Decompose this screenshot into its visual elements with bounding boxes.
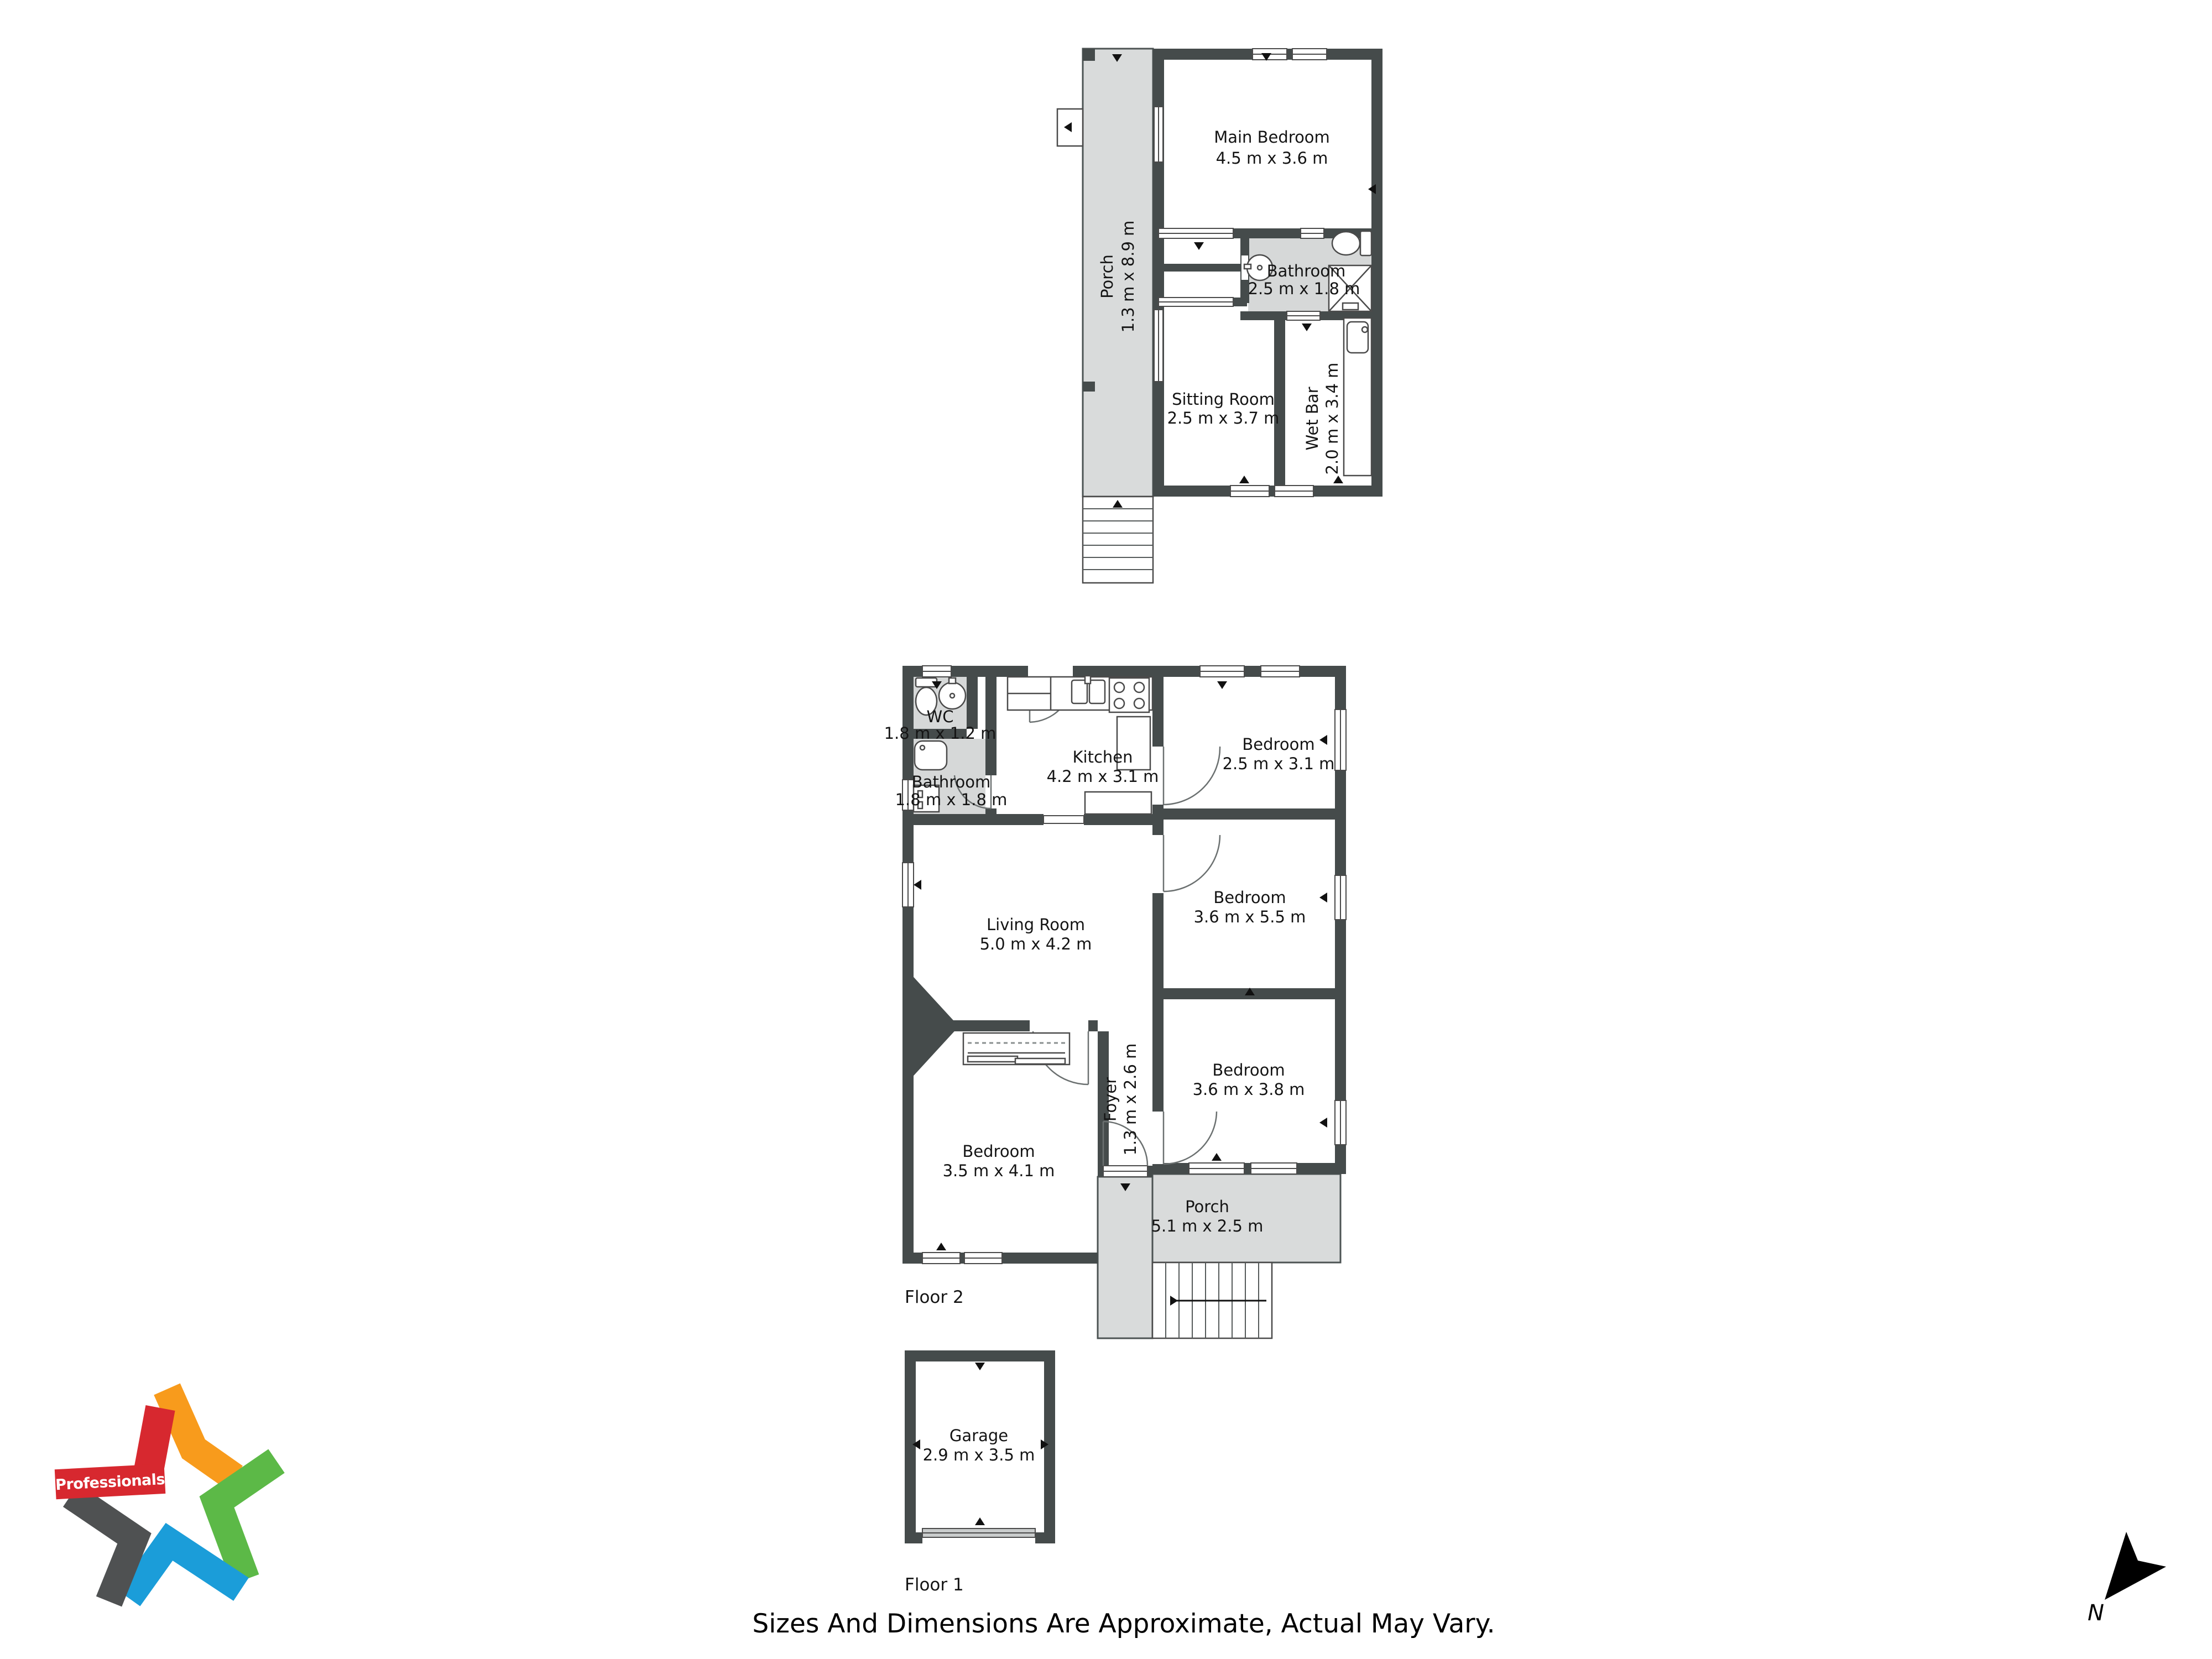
room-label-wc: WC <box>927 707 954 726</box>
bedroom-closet <box>963 1033 1070 1065</box>
room-dims-upper-porch: 1.3 m x 8.9 m <box>1119 221 1138 333</box>
floor1-plan: Garage 2.9 m x 3.5 m Floor 1 <box>905 1350 1055 1595</box>
room-label-upper-bathroom: Bathroom <box>1267 262 1345 280</box>
room-label-wet-bar: Wet Bar <box>1303 387 1322 450</box>
logo-star-arm-orange <box>167 1389 234 1478</box>
north-arrow-icon <box>2105 1532 2166 1600</box>
garage-door <box>922 1528 1035 1543</box>
room-label-bedroom-1: Bedroom <box>1242 735 1314 754</box>
floor2-label: Floor 2 <box>905 1287 964 1307</box>
room-label-bathroom2: Bathroom <box>912 773 990 791</box>
logo-star-arm-green <box>217 1461 276 1579</box>
north-label: N <box>2088 1600 2104 1626</box>
room-dims-kitchen: 4.2 m x 3.1 m <box>1047 767 1159 786</box>
floorplan-canvas: Main Bedroom 4.5 m x 3.6 m Porch 1.3 m x… <box>0 0 2212 1659</box>
logo-star-arm-red <box>148 1408 160 1473</box>
room-label-porch2: Porch <box>1185 1197 1229 1216</box>
room-dims-wc: 1.8 m x 1.2 m <box>884 724 997 743</box>
professionals-logo: Professionals <box>55 1389 276 1601</box>
upper-floor-plan: Main Bedroom 4.5 m x 3.6 m Porch 1.3 m x… <box>1057 49 1383 583</box>
upper-bathroom-toilet <box>1332 231 1371 255</box>
room-dims-main-bedroom: 4.5 m x 3.6 m <box>1216 149 1328 168</box>
upper-wetbar-counter <box>1344 318 1371 476</box>
north-compass: N <box>2088 1532 2166 1626</box>
room-dims-bedroom-2: 3.6 m x 5.5 m <box>1194 907 1306 926</box>
logo-banner: Professionals <box>55 1464 166 1499</box>
room-label-living-room: Living Room <box>987 915 1085 934</box>
room-dims-garage: 2.9 m x 3.5 m <box>923 1446 1035 1464</box>
room-dims-bedroom-3: 3.6 m x 3.8 m <box>1193 1080 1305 1099</box>
floor1-label: Floor 1 <box>905 1575 964 1595</box>
room-dims-bedroom-1: 2.5 m x 3.1 m <box>1223 754 1335 773</box>
room-label-foyer: Foyer <box>1101 1077 1120 1121</box>
floor2-plan: WC 1.8 m x 1.2 m Kitchen 4.2 m x 3.1 m B… <box>884 666 1346 1338</box>
room-dims-wet-bar: 2.0 m x 3.4 m <box>1323 363 1342 475</box>
room-dims-foyer: 1.3 m x 2.6 m <box>1121 1044 1140 1156</box>
room-label-garage: Garage <box>950 1426 1008 1445</box>
room-label-kitchen: Kitchen <box>1073 748 1133 766</box>
room-dims-living-room: 5.0 m x 4.2 m <box>980 935 1092 953</box>
upper-stairs <box>1083 497 1153 583</box>
room-label-upper-porch: Porch <box>1098 254 1117 299</box>
room-dims-porch2: 5.1 m x 2.5 m <box>1151 1217 1264 1235</box>
room-dims-upper-bathroom: 2.5 m x 1.8 m <box>1248 279 1360 298</box>
floor2-stairs <box>1152 1262 1272 1338</box>
room-dims-sitting-room: 2.5 m x 3.7 m <box>1167 409 1280 427</box>
floorplan-page: Main Bedroom 4.5 m x 3.6 m Porch 1.3 m x… <box>0 0 2212 1659</box>
room-label-bedroom-3: Bedroom <box>1212 1061 1285 1079</box>
disclaimer-text: Sizes And Dimensions Are Approximate, Ac… <box>752 1609 1495 1639</box>
room-label-main-bedroom: Main Bedroom <box>1214 128 1330 147</box>
room-dims-bedroom-4: 3.5 m x 4.1 m <box>943 1161 1055 1180</box>
room-label-bedroom-2: Bedroom <box>1213 888 1286 907</box>
logo-star-arm-gray <box>71 1495 134 1601</box>
kitchen-counter <box>1008 676 1152 814</box>
room-label-sitting-room: Sitting Room <box>1172 390 1275 409</box>
room-dims-bathroom2: 1.8 m x 1.8 m <box>895 790 1008 809</box>
room-label-bedroom-4: Bedroom <box>962 1142 1035 1161</box>
